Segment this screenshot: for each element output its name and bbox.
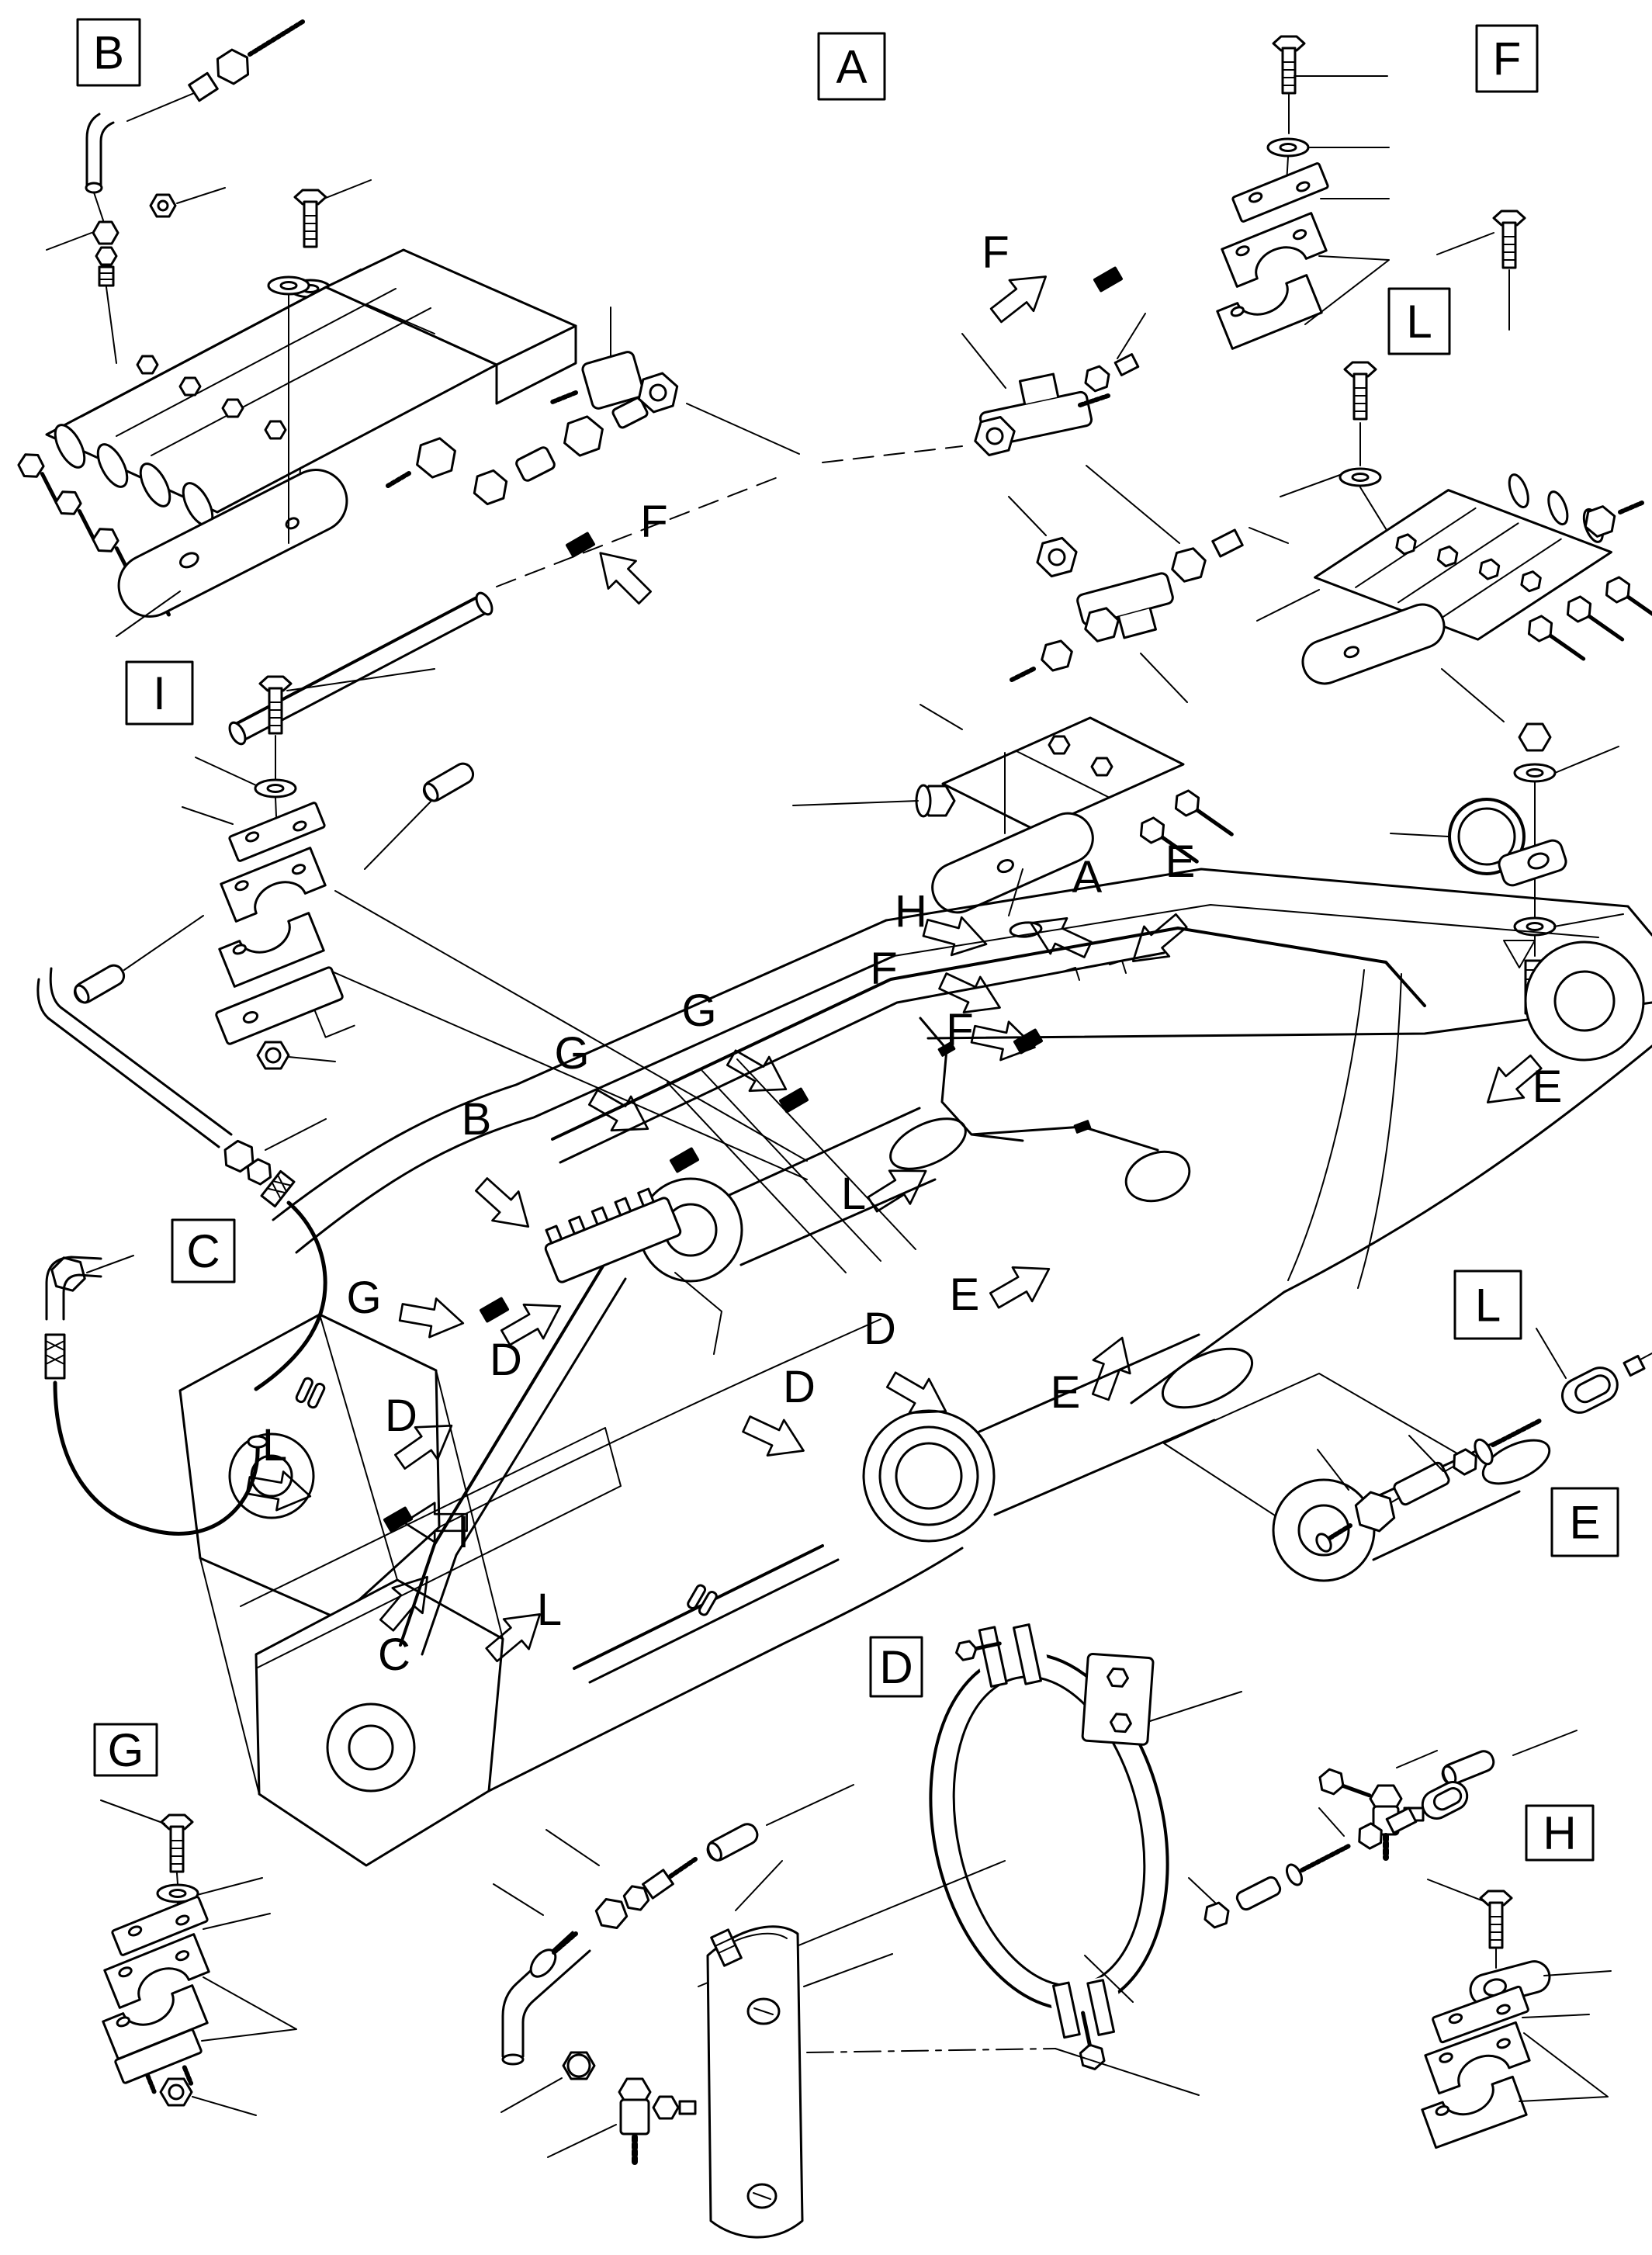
- detail-box-letter: L: [1475, 1280, 1501, 1332]
- section-b-parts: [16, 250, 576, 636]
- callout-letter: F: [946, 1005, 973, 1055]
- detail-box-b: B: [78, 19, 140, 85]
- callout-letter: E: [950, 1270, 980, 1320]
- detail-box-letter: B: [93, 27, 124, 79]
- location-arrow-icon: [969, 1015, 1039, 1066]
- boom-body: [180, 869, 1652, 1865]
- location-arrow-icon: [985, 1252, 1058, 1317]
- callout-letter: F: [982, 227, 1009, 278]
- detail-box-letter: C: [186, 1225, 220, 1277]
- callout-letter: F: [870, 944, 897, 994]
- callout-g: G: [346, 1273, 466, 1342]
- callout-e: E: [1475, 1047, 1562, 1117]
- callout-f: F: [870, 944, 1008, 1025]
- callout-g: G: [681, 985, 795, 1107]
- location-arrow-icon: [920, 909, 991, 963]
- callout-l: L: [841, 1155, 937, 1221]
- callout-letter: D: [864, 1304, 896, 1354]
- detail-box-letter: A: [836, 41, 867, 93]
- detail-box-a: A: [819, 33, 885, 99]
- location-arrow-icon: [398, 1293, 467, 1342]
- diagram-canvas: BAFLICLEDGHFFHAEFFGGBLEEEDDDDLLICG: [0, 0, 1652, 2255]
- detail-box-l: L: [1455, 1271, 1521, 1339]
- detail-box-letter: I: [153, 667, 166, 719]
- callout-letter: F: [640, 497, 667, 547]
- callout-letter: E: [1051, 1367, 1081, 1418]
- parts-diagram-page: BAFLICLEDGHFFHAEFFGGBLEEEDDDDLLICG: [0, 0, 1652, 2255]
- detail-box-i: I: [126, 662, 192, 724]
- callout-f: F: [587, 497, 668, 611]
- detail-box-d: D: [871, 1637, 922, 1696]
- callout-letter: L: [262, 1420, 287, 1470]
- detail-box-letter: F: [1493, 33, 1522, 85]
- callout-letter: L: [537, 1585, 562, 1635]
- detail-box-letter: H: [1543, 1807, 1576, 1859]
- section-i-parts: [71, 669, 807, 1179]
- location-arrow-icon: [469, 1170, 542, 1242]
- callout-letter: G: [554, 1028, 589, 1079]
- detail-box-letter: D: [879, 1641, 913, 1693]
- detail-box-letter: G: [108, 1724, 144, 1776]
- callout-letter: G: [346, 1273, 381, 1323]
- detail-box-l: L: [1389, 289, 1449, 354]
- callout-letter: D: [385, 1391, 417, 1441]
- callout-letter: D: [783, 1362, 816, 1412]
- section-e-parts: [1189, 1328, 1652, 1930]
- detail-box-f: F: [1477, 26, 1537, 92]
- callout-letter: L: [841, 1169, 866, 1219]
- detail-box-letter: L: [1406, 296, 1432, 348]
- section-a-parts: [793, 497, 1288, 920]
- callout-letter: C: [378, 1630, 410, 1680]
- callout-letter: G: [681, 985, 716, 1036]
- callout-letter: B: [462, 1094, 492, 1145]
- detail-box-g: G: [95, 1724, 157, 1776]
- detail-box-h: H: [1526, 1806, 1593, 1860]
- detail-box-letter: E: [1569, 1497, 1600, 1549]
- section-g-parts: [101, 1800, 296, 2115]
- location-arrow-icon: [722, 1041, 795, 1106]
- callout-d: D: [864, 1304, 955, 1429]
- detail-box-c: C: [172, 1220, 234, 1282]
- detail-box-e: E: [1552, 1488, 1618, 1556]
- callout-letter: A: [1072, 852, 1103, 902]
- callout-b: B: [462, 1094, 542, 1241]
- section-f-parts: [1217, 36, 1389, 348]
- location-arrow-icon: [587, 539, 659, 611]
- location-arrow-icon: [1120, 906, 1193, 976]
- location-arrow-icon: [1082, 1331, 1141, 1403]
- callout-e: E: [1051, 1331, 1141, 1418]
- location-arrow-icon: [862, 1155, 936, 1221]
- callout-letter: D: [490, 1335, 522, 1385]
- callout-letter: E: [1165, 837, 1196, 887]
- section-l-parts: [1257, 211, 1652, 722]
- boom-piping: [296, 266, 1425, 1682]
- location-arrow-icon: [738, 1406, 812, 1468]
- callout-letter: E: [1533, 1062, 1563, 1112]
- section-d-parts: [494, 1596, 1242, 2237]
- callout-e: E: [950, 1252, 1059, 1320]
- callout-letter: H: [895, 886, 927, 937]
- callout-f: F: [982, 227, 1058, 331]
